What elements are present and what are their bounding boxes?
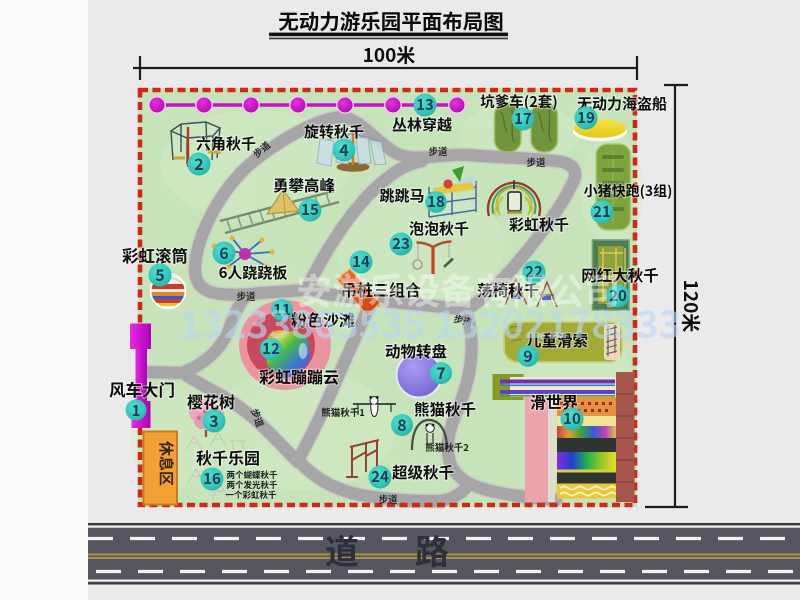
svg-text:19: 19 — [577, 107, 595, 128]
svg-text:六角秋千: 六角秋千 — [196, 133, 256, 154]
svg-text:泡泡秋千: 泡泡秋千 — [409, 218, 469, 239]
svg-text:6: 6 — [219, 240, 228, 264]
svg-text:步道: 步道 — [526, 155, 546, 169]
svg-text:超级秋千: 超级秋千 — [392, 461, 454, 483]
svg-text:100米: 100米 — [363, 41, 416, 68]
svg-text:120米: 120米 — [678, 280, 705, 333]
svg-text:13233863535 13202178333: 13233863535 13202178333 — [179, 294, 681, 349]
svg-text:小猪快跑(3组): 小猪快跑(3组) — [584, 181, 673, 201]
svg-text:15: 15 — [301, 199, 319, 220]
svg-text:路: 路 — [415, 525, 449, 574]
svg-text:一个彩虹秋千: 一个彩虹秋千 — [225, 489, 277, 501]
svg-text:勇攀高峰: 勇攀高峰 — [273, 174, 336, 196]
svg-text:风车大门: 风车大门 — [109, 377, 175, 401]
svg-text:跳跳马: 跳跳马 — [379, 185, 424, 206]
svg-text:13: 13 — [416, 94, 434, 115]
svg-text:2: 2 — [194, 151, 203, 175]
svg-text:3: 3 — [209, 408, 218, 432]
svg-text:彩虹秋千: 彩虹秋千 — [509, 214, 569, 235]
svg-text:步道: 步道 — [428, 144, 448, 158]
svg-text:23: 23 — [392, 233, 410, 254]
svg-text:熊猫秋千2: 熊猫秋千2 — [425, 440, 469, 454]
svg-text:步道: 步道 — [378, 492, 398, 506]
svg-text:6人跷跷板: 6人跷跷板 — [219, 262, 288, 283]
svg-text:无动力游乐园平面布局图: 无动力游乐园平面布局图 — [278, 5, 504, 35]
svg-text:丛林穿越: 丛林穿越 — [392, 114, 452, 135]
svg-text:4: 4 — [339, 137, 348, 161]
svg-text:旋转秋千: 旋转秋千 — [304, 121, 364, 142]
svg-text:18: 18 — [427, 191, 445, 212]
svg-text:24: 24 — [371, 466, 389, 487]
svg-text:熊猫秋千1: 熊猫秋千1 — [321, 405, 365, 419]
svg-text:8: 8 — [397, 412, 406, 436]
svg-text:7: 7 — [436, 360, 445, 384]
svg-text:熊猫秋千: 熊猫秋千 — [414, 398, 476, 420]
svg-text:秋千乐园: 秋千乐园 — [196, 445, 260, 469]
svg-text:21: 21 — [593, 201, 611, 222]
svg-text:17: 17 — [514, 108, 532, 129]
svg-text:16: 16 — [203, 468, 221, 489]
svg-text:10: 10 — [563, 408, 581, 429]
svg-text:休息区: 休息区 — [156, 441, 177, 486]
svg-text:道: 道 — [325, 525, 359, 574]
svg-text:5: 5 — [155, 262, 164, 286]
svg-text:1: 1 — [132, 400, 141, 421]
svg-text:彩虹蹦蹦云: 彩虹蹦蹦云 — [259, 364, 339, 388]
